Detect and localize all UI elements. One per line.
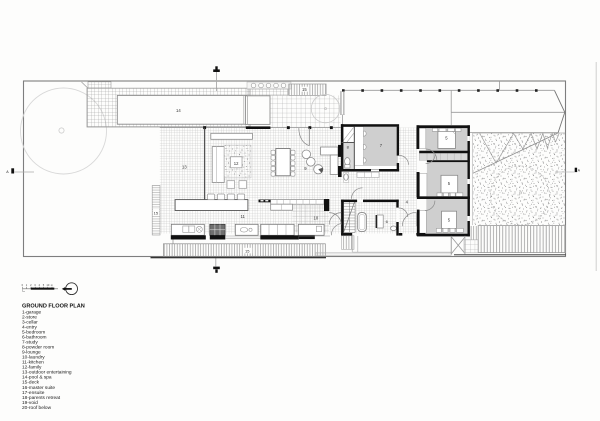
svg-text:m: m <box>51 284 53 287</box>
svg-text:11: 11 <box>241 214 246 219</box>
svg-text:20-roof below: 20-roof below <box>22 405 52 411</box>
svg-text:15: 15 <box>302 87 307 92</box>
svg-text:15-deck: 15-deck <box>22 380 40 386</box>
svg-text:19-void: 19-void <box>22 400 38 406</box>
svg-text:12: 12 <box>234 161 239 166</box>
svg-text:13: 13 <box>182 164 187 169</box>
svg-text:11-kitchen: 11-kitchen <box>22 360 44 366</box>
svg-text:14: 14 <box>176 108 181 113</box>
svg-text:15: 15 <box>245 249 250 254</box>
svg-text:15: 15 <box>154 211 159 216</box>
svg-text:GROUND FLOOR PLAN: GROUND FLOOR PLAN <box>22 303 85 309</box>
svg-text:10: 10 <box>314 216 319 221</box>
svg-text:7-study: 7-study <box>22 340 38 346</box>
svg-text:3-cellar: 3-cellar <box>22 319 38 325</box>
